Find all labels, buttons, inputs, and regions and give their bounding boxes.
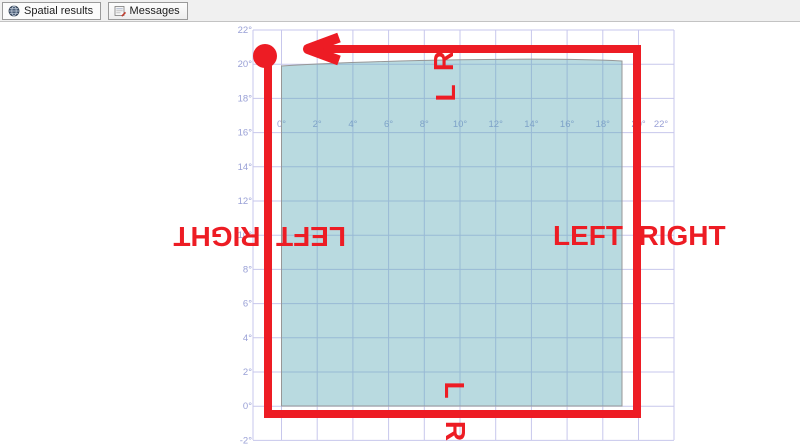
x-tick-label: 22° <box>654 119 669 130</box>
results-tab-bar: Spatial results Messages <box>0 0 800 22</box>
spatial-plot-svg: 0°2°4°6°8°10°12°14°16°18°20°22°22°20°18°… <box>0 23 800 446</box>
tab-messages-label: Messages <box>130 5 180 17</box>
y-tick-label: 10° <box>238 230 253 241</box>
y-tick-label: 2° <box>243 367 252 378</box>
y-tick-label: 8° <box>243 264 252 275</box>
y-tick-label: 14° <box>238 162 253 173</box>
y-tick-label: 16° <box>238 128 253 139</box>
tab-spatial-results[interactable]: Spatial results <box>2 2 101 20</box>
y-tick-label: 0° <box>243 401 252 412</box>
y-tick-label: 6° <box>243 299 252 310</box>
y-tick-label: 4° <box>243 333 252 344</box>
y-tick-label: 22° <box>238 25 253 36</box>
ring-start-marker <box>253 44 277 68</box>
messages-icon <box>114 5 126 17</box>
y-tick-label: 12° <box>238 196 253 207</box>
y-tick-label: 18° <box>238 93 253 104</box>
globe-icon <box>8 5 20 17</box>
y-tick-label: 20° <box>238 59 253 70</box>
tab-spatial-results-label: Spatial results <box>24 5 93 17</box>
spatial-plot-canvas[interactable]: 0°2°4°6°8°10°12°14°16°18°20°22°22°20°18°… <box>0 23 800 446</box>
y-tick-label: -2° <box>240 435 252 446</box>
polygon-region <box>282 59 623 406</box>
tab-messages[interactable]: Messages <box>108 2 188 20</box>
